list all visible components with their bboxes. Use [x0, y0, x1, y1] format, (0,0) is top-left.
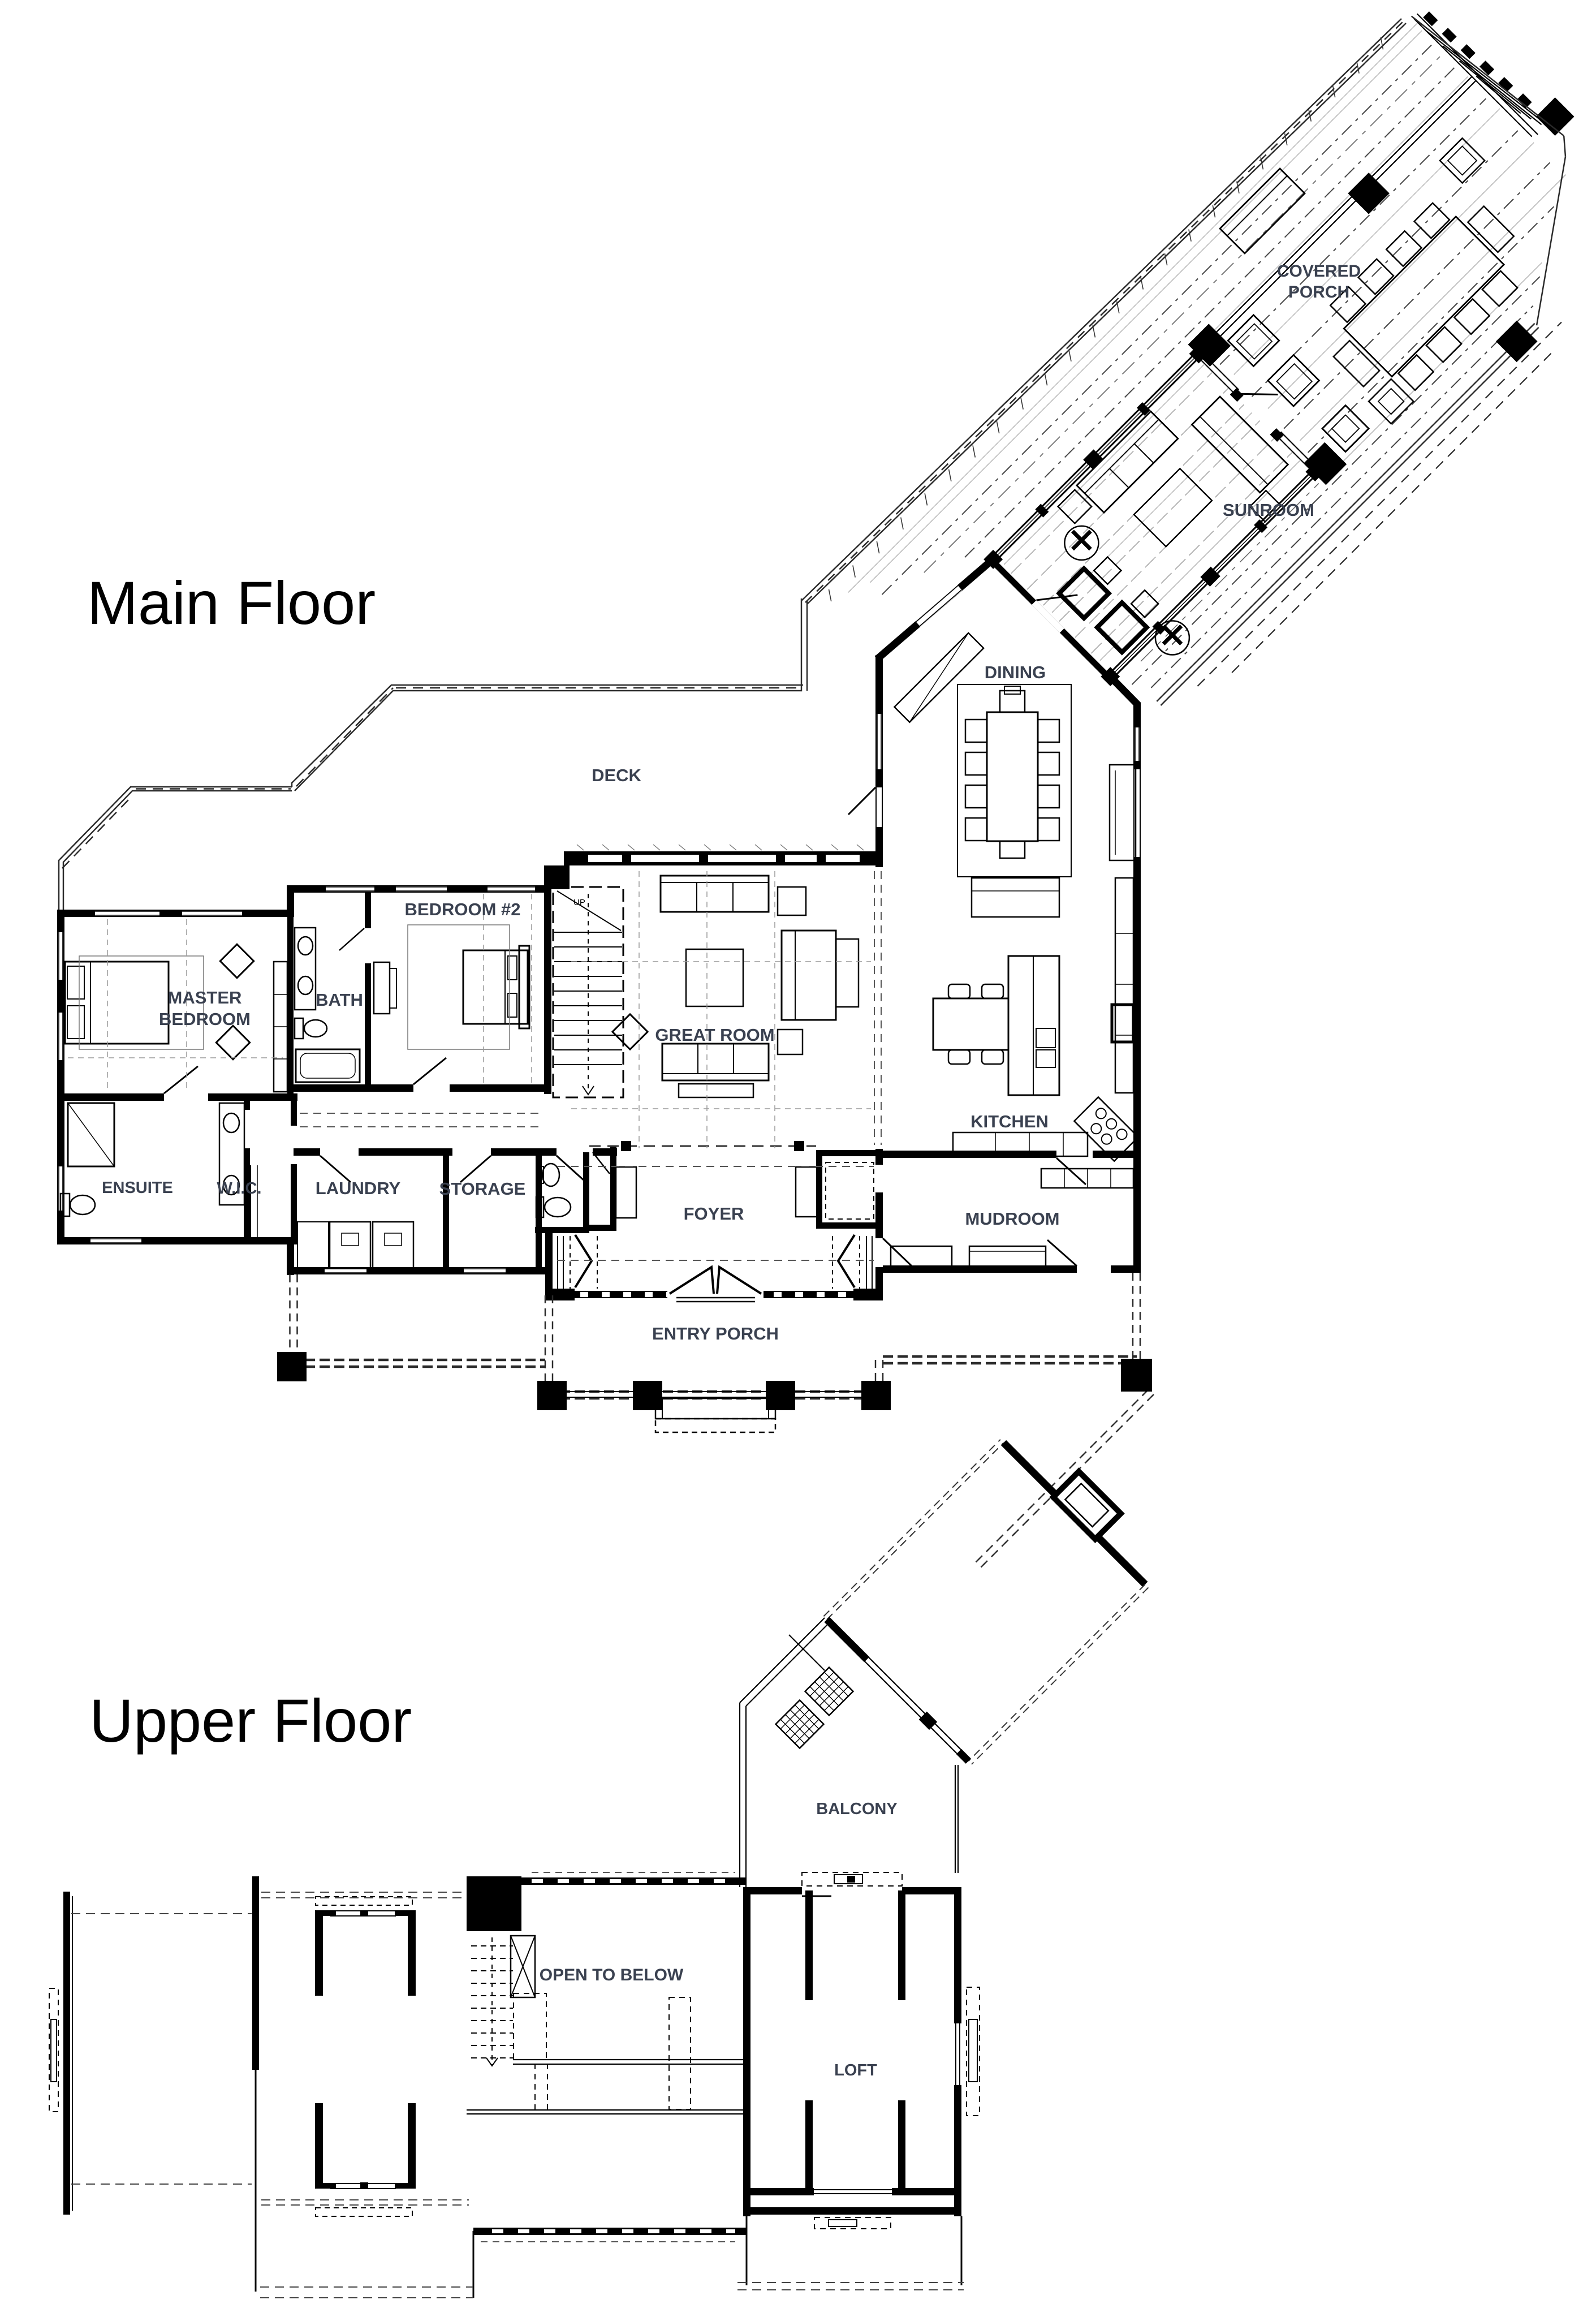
svg-text:PORCH: PORCH	[1288, 283, 1349, 302]
svg-text:MASTER: MASTER	[168, 988, 242, 1007]
svg-text:DECK: DECK	[592, 765, 641, 785]
svg-text:OPEN TO BELOW: OPEN TO BELOW	[540, 1966, 684, 1984]
svg-text:COVERED: COVERED	[1277, 262, 1361, 281]
svg-text:ENSUITE: ENSUITE	[102, 1179, 173, 1197]
svg-text:BALCONY: BALCONY	[816, 1800, 897, 1818]
svg-text:BATH: BATH	[316, 990, 363, 1010]
svg-text:STORAGE: STORAGE	[439, 1179, 526, 1199]
svg-text:BEDROOM: BEDROOM	[159, 1009, 251, 1029]
svg-text:ENTRY PORCH: ENTRY PORCH	[652, 1324, 779, 1343]
svg-text:SUNROOM: SUNROOM	[1223, 500, 1314, 520]
svg-text:Main Floor: Main Floor	[87, 569, 376, 637]
svg-text:KITCHEN: KITCHEN	[970, 1112, 1049, 1131]
svg-text:BEDROOM #2: BEDROOM #2	[405, 899, 521, 919]
svg-text:Upper Floor: Upper Floor	[89, 1686, 412, 1755]
svg-text:DINING: DINING	[985, 662, 1046, 682]
svg-text:W.I.C.: W.I.C.	[217, 1179, 262, 1198]
svg-text:GREAT ROOM: GREAT ROOM	[655, 1025, 774, 1045]
svg-text:LAUNDRY: LAUNDRY	[316, 1178, 401, 1198]
svg-text:LOFT: LOFT	[834, 2061, 877, 2079]
svg-text:FOYER: FOYER	[684, 1204, 744, 1224]
svg-text:MUDROOM: MUDROOM	[965, 1209, 1059, 1229]
svg-text:UP: UP	[573, 898, 585, 907]
